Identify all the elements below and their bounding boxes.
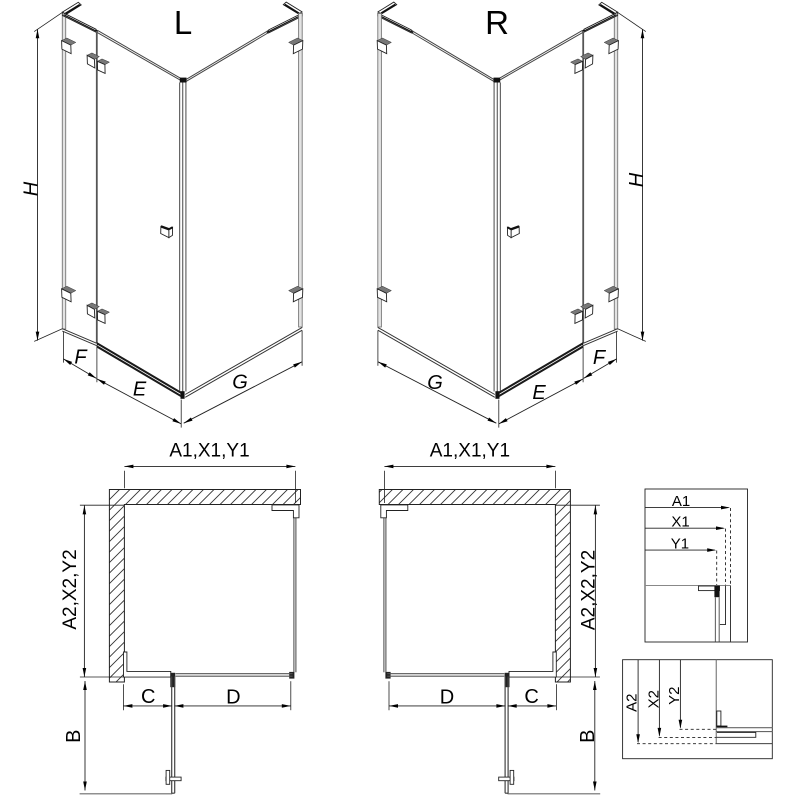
svg-text:X1: X1 xyxy=(671,514,689,531)
svg-text:B: B xyxy=(63,730,85,743)
svg-text:B: B xyxy=(577,730,599,743)
svg-text:A1,X1,Y1: A1,X1,Y1 xyxy=(169,441,249,462)
svg-text:R: R xyxy=(485,4,509,41)
svg-text:A1: A1 xyxy=(672,493,690,510)
svg-text:G: G xyxy=(232,372,248,394)
svg-text:H: H xyxy=(21,181,43,196)
svg-text:E: E xyxy=(133,379,147,401)
svg-text:A2: A2 xyxy=(624,694,641,712)
svg-text:E: E xyxy=(532,382,546,404)
svg-text:D: D xyxy=(226,687,240,709)
svg-text:F: F xyxy=(593,347,607,369)
svg-text:F: F xyxy=(74,347,88,369)
svg-text:A1,X1,Y1: A1,X1,Y1 xyxy=(430,441,510,462)
svg-text:C: C xyxy=(524,686,538,708)
svg-text:L: L xyxy=(174,4,192,41)
svg-text:A2,X2,Y2: A2,X2,Y2 xyxy=(60,549,81,629)
svg-text:A2,X2,Y2: A2,X2,Y2 xyxy=(579,550,600,630)
svg-text:X2: X2 xyxy=(645,690,662,708)
svg-text:H: H xyxy=(626,172,648,187)
svg-text:Y1: Y1 xyxy=(671,536,689,553)
svg-text:D: D xyxy=(440,687,454,709)
svg-text:Y2: Y2 xyxy=(666,687,683,705)
svg-text:G: G xyxy=(427,372,443,394)
svg-text:C: C xyxy=(141,686,155,708)
